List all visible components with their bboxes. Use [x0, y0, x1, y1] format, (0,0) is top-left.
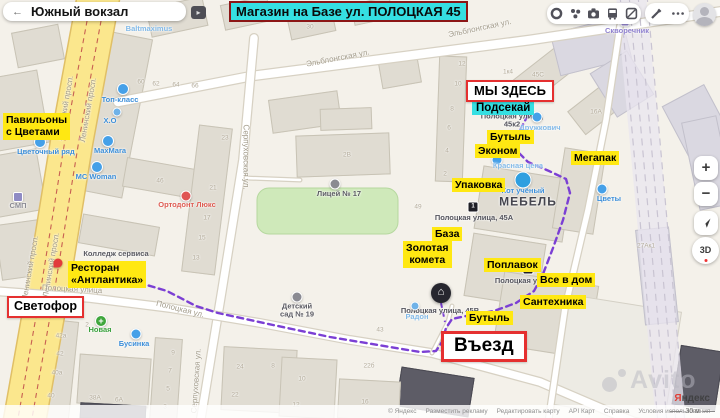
search-bar[interactable]: ← Южный вокзал — [3, 2, 186, 21]
annotation-title-banner: Магазин на Базе ул. ПОЛОЦКАЯ 45 — [229, 1, 468, 22]
more-options-icon[interactable] — [670, 6, 686, 22]
back-icon[interactable]: ← — [12, 6, 23, 18]
avito-logo-dot — [618, 369, 626, 377]
scale-line — [703, 411, 715, 412]
attribution-link[interactable]: Редактировать карту — [497, 408, 560, 415]
scale-label: 30 м — [685, 408, 700, 415]
compass-3d-button[interactable]: 3D — [692, 237, 719, 264]
transit-bus-icon[interactable] — [605, 6, 621, 22]
traffic-icon[interactable] — [548, 6, 564, 22]
my-location-button[interactable] — [694, 211, 718, 235]
ruler-icon[interactable] — [648, 6, 664, 22]
copyright-text: © Яндекс — [388, 408, 416, 415]
attribution-link[interactable]: Разместить рекламу — [425, 408, 487, 415]
yandex-maps-app: Эльблонгская ул.Эльблонгская ул.Ленински… — [0, 0, 720, 418]
scale-bar: 30 м — [670, 408, 715, 415]
attribution-bar: © Яндекс Разместить рекламуРедактировать… — [0, 405, 720, 418]
search-title: Южный вокзал — [31, 4, 128, 19]
tools-toolbar — [645, 3, 689, 24]
avito-watermark: Avito — [602, 367, 697, 395]
profile-avatar[interactable] — [693, 3, 716, 26]
zoom-out-button[interactable]: − — [694, 182, 718, 206]
avito-logo-dot — [602, 377, 617, 392]
yandex-logo[interactable]: Яндекс — [674, 393, 710, 404]
poi-cluster-icon[interactable] — [567, 6, 583, 22]
zoom-in-button[interactable]: + — [694, 156, 718, 180]
collapse-button[interactable]: ▸ — [191, 6, 206, 19]
attribution-link[interactable]: API Карт — [569, 408, 595, 415]
ui-chrome: ← Южный вокзал ▸ Магазин на Базе ул. ПОЛ… — [0, 0, 720, 418]
map-layers-toolbar — [547, 3, 641, 24]
avito-watermark-text: Avito — [630, 367, 697, 395]
scale-line — [670, 411, 682, 412]
parking-icon[interactable] — [624, 6, 640, 22]
panoramas-camera-icon[interactable] — [586, 6, 602, 22]
attribution-link[interactable]: Справка — [604, 408, 630, 415]
